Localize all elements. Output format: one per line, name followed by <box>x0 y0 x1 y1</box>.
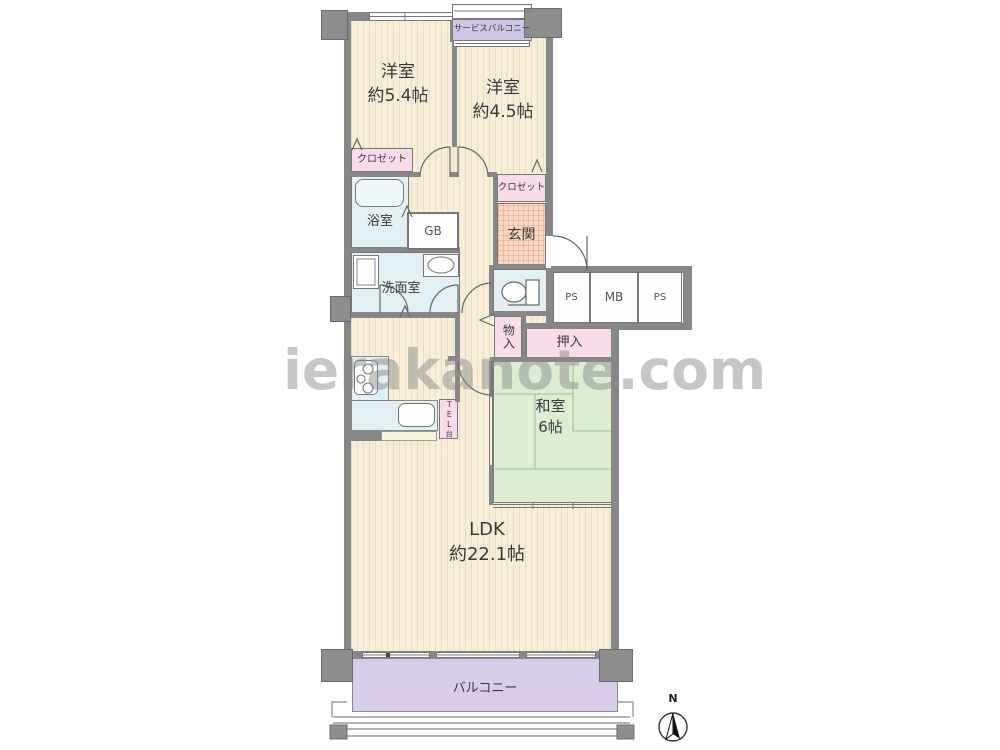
wall-toilet-bottom <box>490 311 546 316</box>
kitchen-wall-stub <box>351 431 381 441</box>
wall-ps-bottom <box>612 323 692 330</box>
meter-box <box>590 272 638 323</box>
balcony <box>352 658 618 712</box>
pillar-top-right <box>524 8 562 38</box>
japanese-room <box>493 361 612 503</box>
wall-ldk-door-stub <box>448 356 460 361</box>
kitchen-sink <box>398 403 435 427</box>
window-ldk-1 <box>362 652 430 658</box>
service-balcony-window <box>453 40 530 47</box>
service-balcony-railing <box>452 4 532 19</box>
wall-toilet-left <box>489 265 493 315</box>
wall-genkan-toilet <box>493 264 546 269</box>
wall-corridor-genkan <box>493 172 497 269</box>
compass <box>659 713 687 741</box>
entrance-hall <box>497 203 546 267</box>
wall-monoire-right <box>522 313 526 359</box>
railing-post-left <box>330 725 347 739</box>
closet-2 <box>497 174 546 202</box>
railing-post-right <box>617 725 634 739</box>
wall-wash-kitchen <box>344 312 460 318</box>
stove <box>354 360 378 395</box>
pillar-left-mid <box>330 296 351 322</box>
washer-pan <box>353 255 379 289</box>
storage-oshiire-box <box>526 328 613 359</box>
wall-hall-top-a <box>351 172 420 177</box>
door-arc-entrance <box>553 236 587 270</box>
wall-ps-right <box>683 266 692 330</box>
kitchen-toe-strip <box>381 431 437 441</box>
toilet-room <box>493 269 547 315</box>
wall-left <box>344 12 351 658</box>
storage-monoire-box <box>494 316 522 358</box>
wall-right-upper <box>546 30 553 236</box>
wall-washitsu-top <box>490 357 618 362</box>
wall-washitsu-left-a <box>489 361 493 397</box>
pillar-top-left <box>321 10 348 40</box>
service-balcony <box>452 19 532 41</box>
window-west1 <box>369 12 453 21</box>
tel-stand <box>439 399 458 439</box>
pillar-bottom-right <box>599 649 633 682</box>
wall-top-1 <box>344 12 372 21</box>
closet-1 <box>351 148 413 172</box>
gas-box <box>407 212 459 250</box>
window-ldk-3 <box>526 652 596 658</box>
window-ldk-2 <box>436 652 520 658</box>
pipe-space-1 <box>553 272 590 323</box>
pillar-bottom-left <box>321 649 353 682</box>
wall-hall-top-b <box>450 172 458 177</box>
wall-right-lower <box>611 323 619 655</box>
bathtub <box>355 179 404 207</box>
floor-plan: 洋室約5.4帖 洋室約4.5帖 サービスバルコニー クロゼット クロゼット 浴室… <box>0 0 1000 750</box>
wall-right-entry <box>546 268 553 323</box>
pipe-space-2 <box>638 272 682 323</box>
wall-washitsu-left-b <box>489 465 493 505</box>
label-north: N <box>663 692 683 706</box>
wall-oshiire-top <box>522 323 613 329</box>
vanity-counter <box>423 254 459 277</box>
